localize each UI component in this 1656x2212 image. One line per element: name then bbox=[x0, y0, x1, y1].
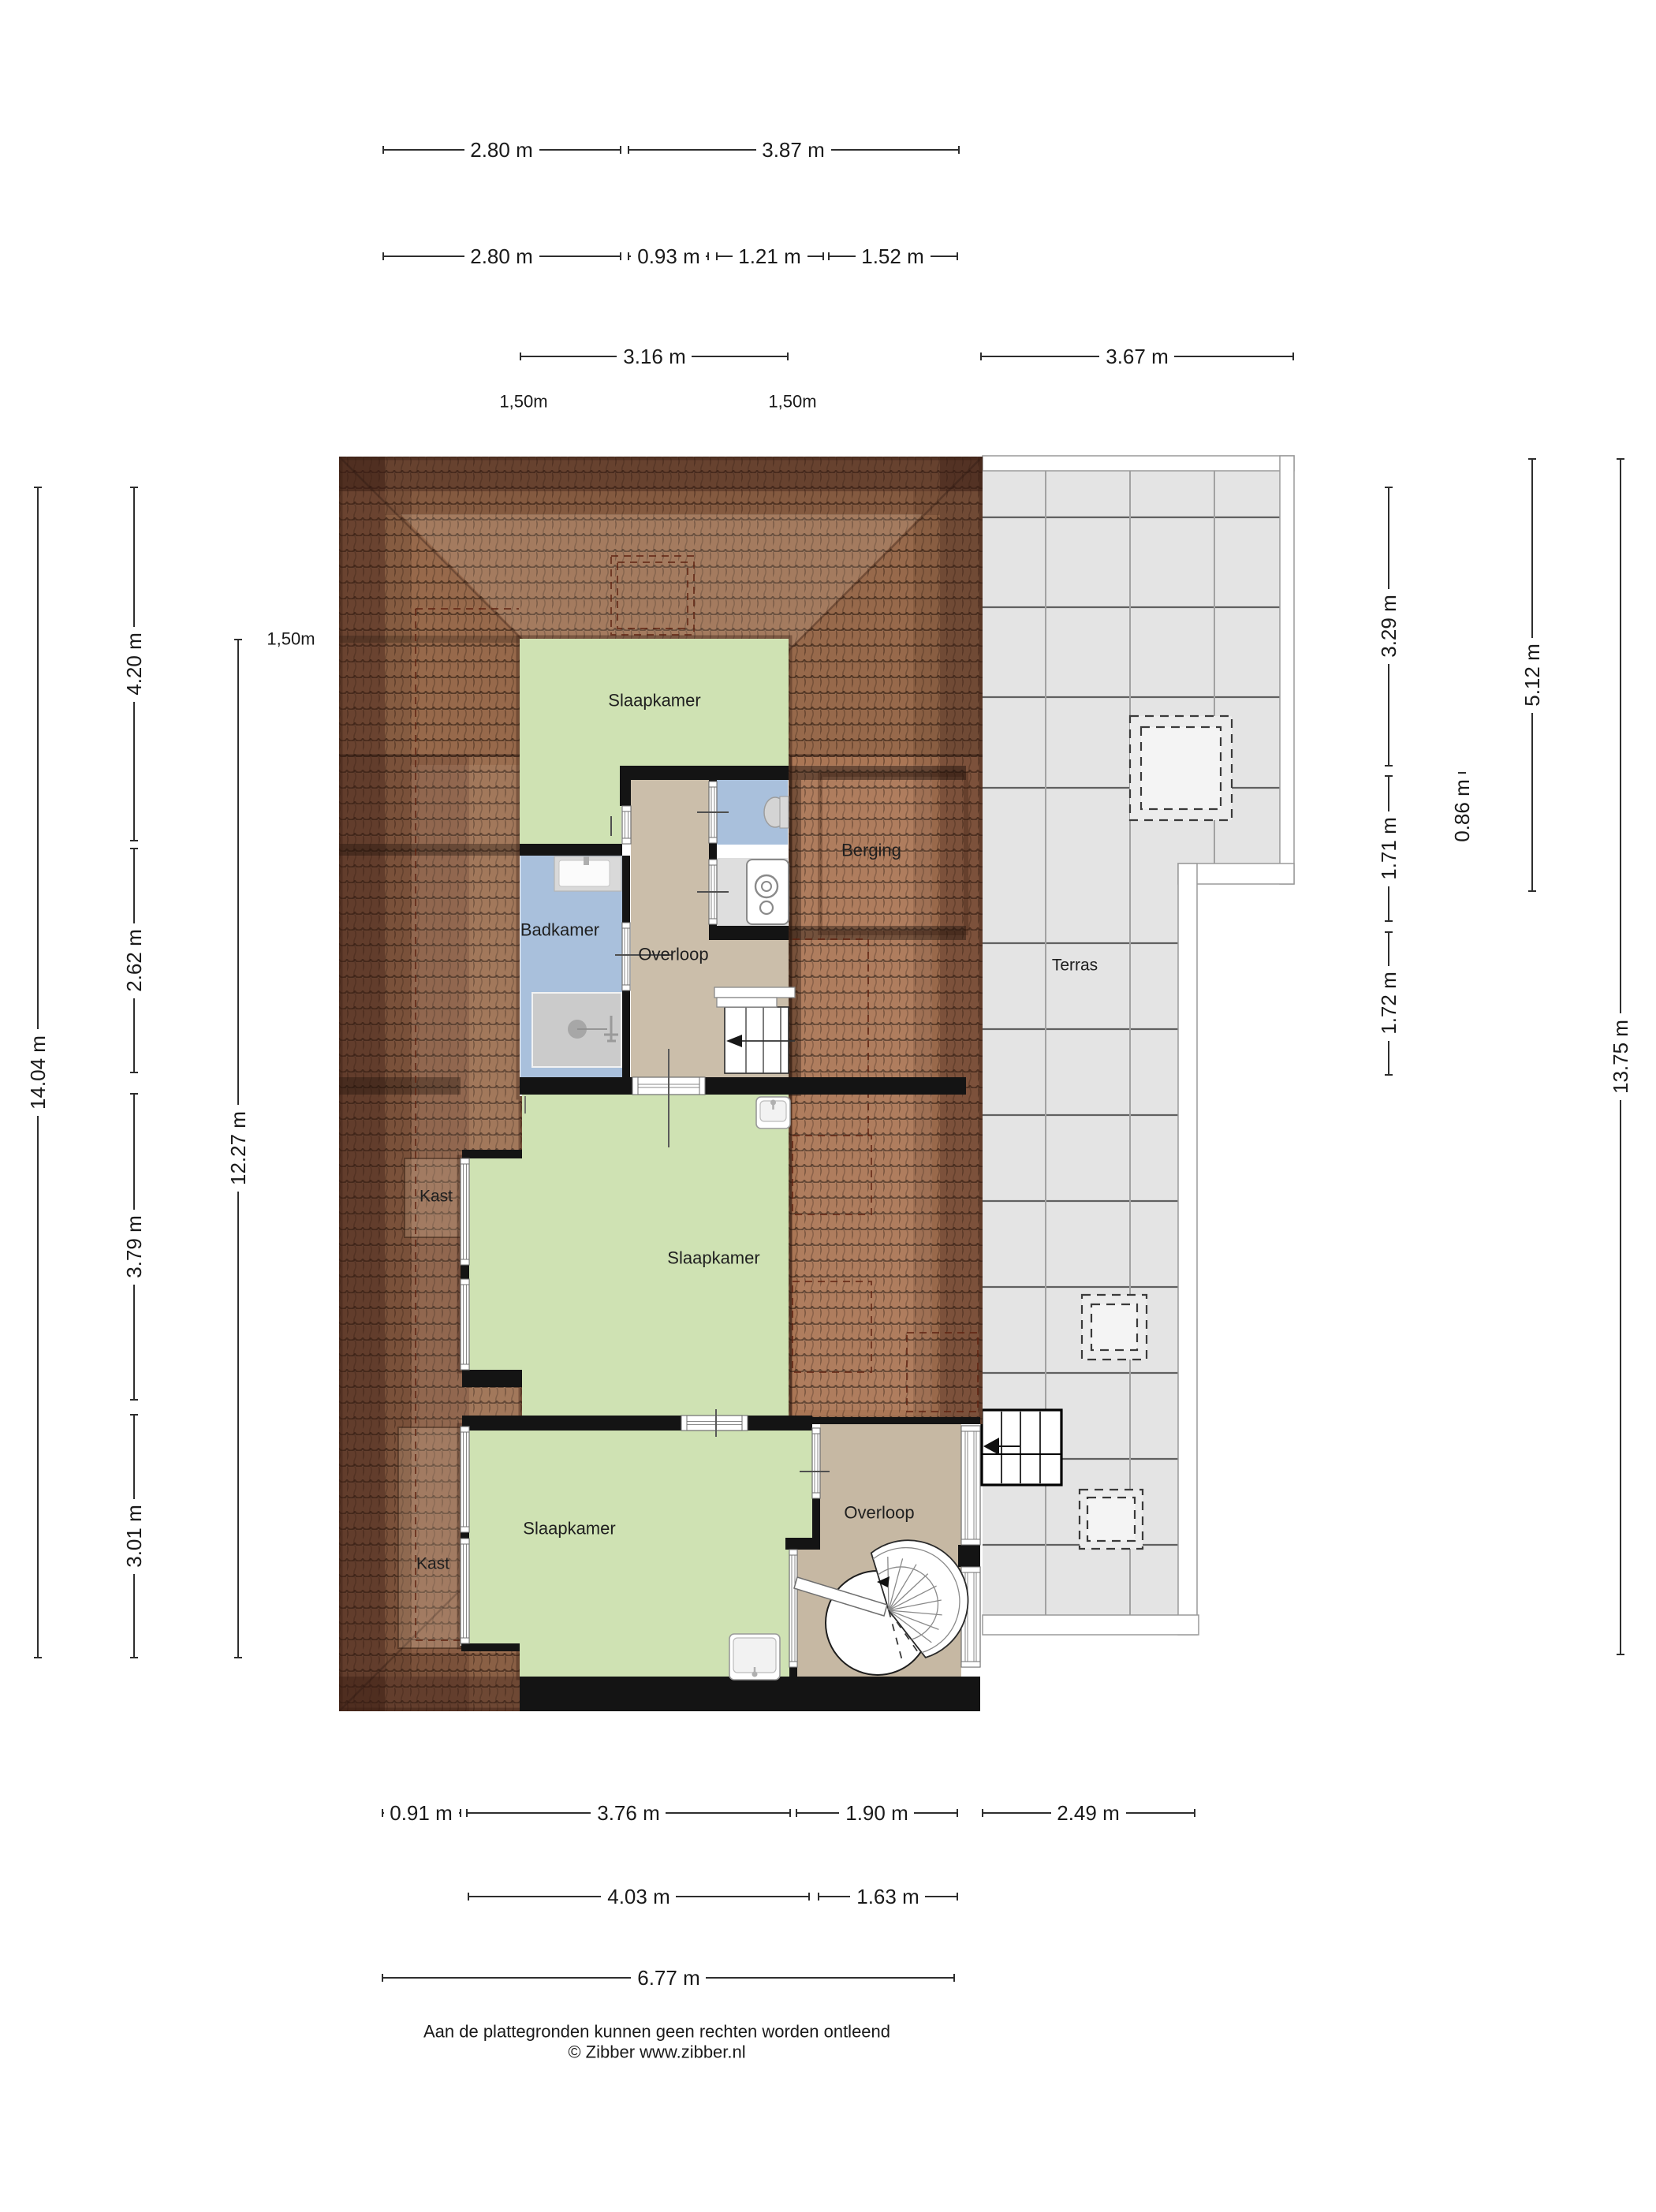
svg-text:5.12 m: 5.12 m bbox=[1520, 643, 1544, 707]
svg-text:Kast: Kast bbox=[420, 1188, 453, 1206]
svg-text:1.72 m: 1.72 m bbox=[1377, 972, 1401, 1035]
svg-text:2.80 m: 2.80 m bbox=[470, 244, 533, 268]
svg-text:Overloop: Overloop bbox=[638, 945, 708, 964]
svg-text:2.49 m: 2.49 m bbox=[1057, 1801, 1120, 1825]
svg-text:4.03 m: 4.03 m bbox=[607, 1885, 670, 1908]
svg-text:2.62 m: 2.62 m bbox=[122, 929, 146, 992]
svg-text:14.04 m: 14.04 m bbox=[26, 1035, 50, 1110]
svg-text:Slaapkamer: Slaapkamer bbox=[523, 1519, 615, 1539]
svg-text:3.87 m: 3.87 m bbox=[762, 138, 825, 162]
svg-text:3.01 m: 3.01 m bbox=[122, 1505, 146, 1568]
svg-text:1,50m: 1,50m bbox=[499, 392, 547, 412]
svg-text:Kast: Kast bbox=[416, 1555, 449, 1573]
svg-text:2.80 m: 2.80 m bbox=[470, 138, 533, 162]
svg-text:0.86 m: 0.86 m bbox=[1450, 779, 1474, 842]
svg-text:3.79 m: 3.79 m bbox=[122, 1215, 146, 1278]
svg-text:1.63 m: 1.63 m bbox=[856, 1885, 919, 1908]
svg-text:Berging: Berging bbox=[841, 841, 901, 860]
svg-text:1.90 m: 1.90 m bbox=[845, 1801, 908, 1825]
svg-text:3.67 m: 3.67 m bbox=[1106, 345, 1169, 368]
svg-text:Aan de plattegronden kunnen ge: Aan de plattegronden kunnen geen rechten… bbox=[423, 2022, 890, 2042]
svg-text:Overloop: Overloop bbox=[844, 1503, 914, 1523]
svg-text:© Zibber www.zibber.nl: © Zibber www.zibber.nl bbox=[568, 2042, 745, 2062]
svg-text:3.16 m: 3.16 m bbox=[623, 345, 686, 368]
svg-text:1.71 m: 1.71 m bbox=[1377, 817, 1401, 880]
svg-text:13.75 m: 13.75 m bbox=[1609, 1020, 1632, 1094]
svg-text:Slaapkamer: Slaapkamer bbox=[667, 1248, 759, 1268]
svg-text:1.52 m: 1.52 m bbox=[861, 244, 924, 268]
svg-text:Slaapkamer: Slaapkamer bbox=[608, 691, 700, 711]
svg-text:Terras: Terras bbox=[1052, 957, 1098, 975]
svg-text:3.29 m: 3.29 m bbox=[1377, 595, 1401, 658]
svg-text:0.93 m: 0.93 m bbox=[637, 244, 700, 268]
svg-text:3.76 m: 3.76 m bbox=[597, 1801, 660, 1825]
svg-text:Badkamer: Badkamer bbox=[520, 920, 599, 940]
svg-text:1,50m: 1,50m bbox=[768, 392, 816, 412]
svg-text:6.77 m: 6.77 m bbox=[637, 1966, 700, 1990]
svg-text:1,50m: 1,50m bbox=[267, 629, 315, 649]
svg-text:1.21 m: 1.21 m bbox=[738, 244, 801, 268]
svg-text:0.91 m: 0.91 m bbox=[390, 1801, 453, 1825]
svg-text:12.27 m: 12.27 m bbox=[226, 1111, 250, 1185]
svg-text:4.20 m: 4.20 m bbox=[122, 632, 146, 696]
